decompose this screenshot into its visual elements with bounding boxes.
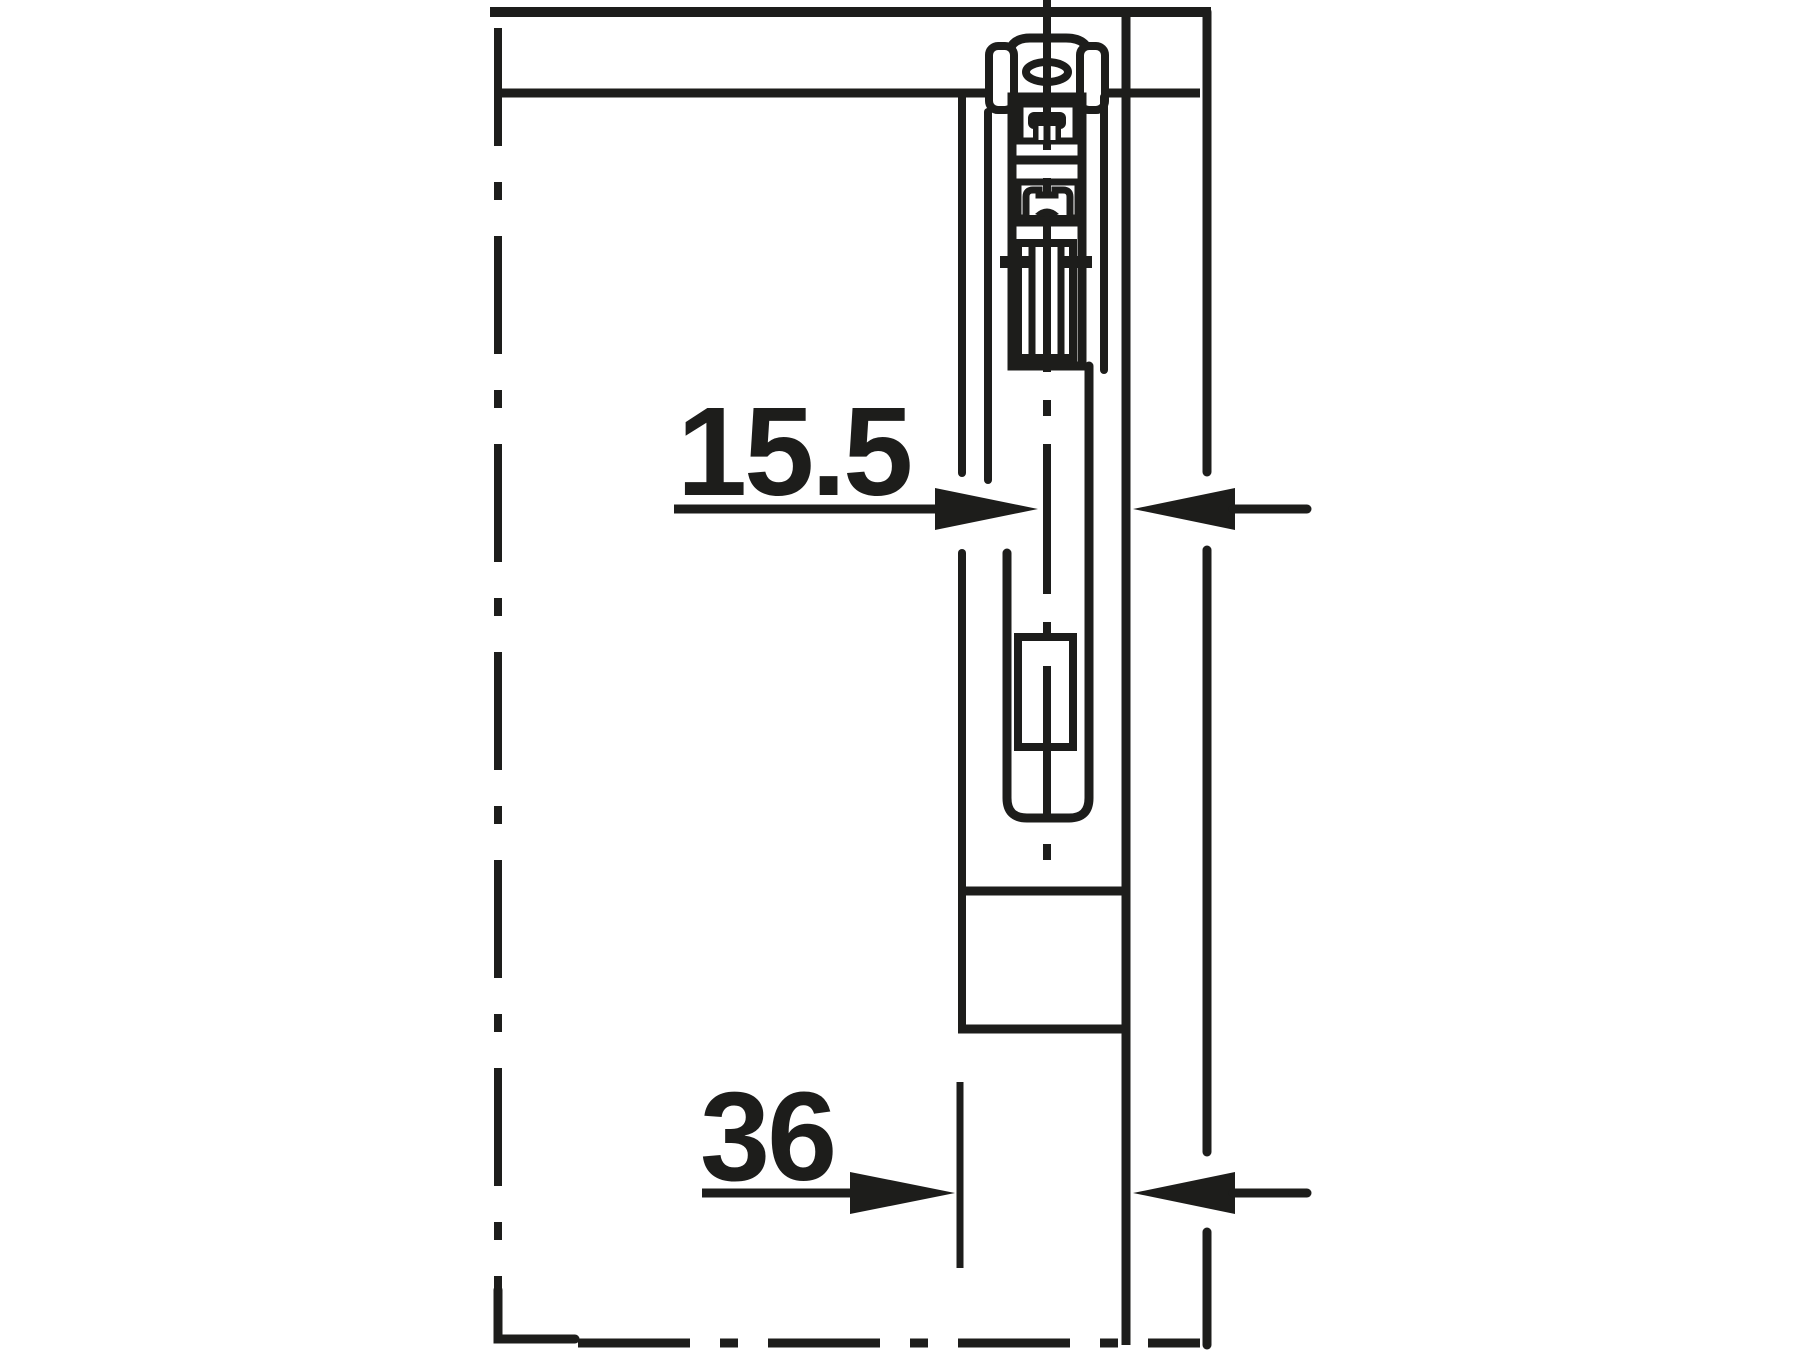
dim-15-5-arrow-right-pointing	[935, 488, 1038, 530]
dim-15-5-arrow-left-pointing	[1133, 488, 1235, 530]
cabinet-axis-lines	[498, 28, 1200, 1343]
dimension-36-label: 36	[700, 1066, 834, 1207]
dim-36-arrow-left-pointing	[1133, 1172, 1235, 1214]
side-panel	[1126, 12, 1207, 1345]
technical-drawing-canvas: 15.5 36	[0, 0, 1800, 1350]
dimension-15-5-label: 15.5	[677, 381, 910, 522]
clip-top-bar-left	[1000, 256, 1034, 268]
dim-36-arrow-right-pointing	[850, 1172, 955, 1214]
clip-top-bar-right	[1058, 256, 1092, 268]
adjustment-screw	[1028, 112, 1066, 140]
technical-drawing-page: 15.5 36	[0, 0, 1800, 1350]
screw-head-stem	[1033, 124, 1061, 140]
axis-corner	[498, 1290, 575, 1339]
dimension-36: 36	[700, 1066, 1307, 1268]
